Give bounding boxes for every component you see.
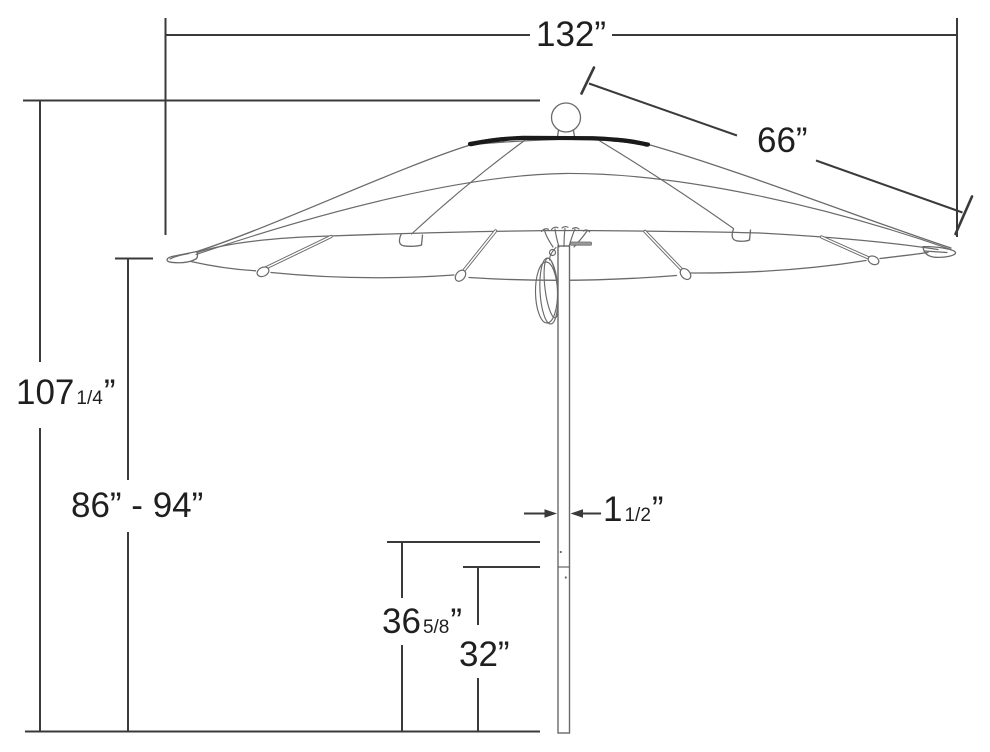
front-rim-scallop-2 bbox=[271, 273, 454, 278]
rope-loop-1 bbox=[538, 258, 559, 325]
pole-dia-arrowhead-left bbox=[545, 509, 558, 517]
hub-hook-3 bbox=[562, 227, 568, 228]
vent-shadow-accents bbox=[470, 138, 648, 145]
rib-span-label: 66” bbox=[757, 121, 808, 160]
front-rim-scallop-5 bbox=[880, 253, 928, 259]
mid-height-main: 36 bbox=[382, 602, 421, 641]
pole-diameter-main: 1 bbox=[603, 490, 622, 529]
canopy-seam-back-left bbox=[412, 141, 525, 235]
mid-height-label: 365/8” bbox=[382, 602, 462, 641]
finial-ball bbox=[552, 103, 581, 132]
umbrella-drawing bbox=[167, 103, 956, 733]
front-rib-strut-2-core bbox=[462, 231, 496, 274]
hub-stub-1 bbox=[545, 230, 554, 247]
left-canopy-tip bbox=[167, 252, 197, 263]
hub-stub-2 bbox=[555, 229, 559, 247]
pole-diameter-unit: ” bbox=[652, 490, 664, 529]
umbrella-pole bbox=[558, 246, 570, 733]
total-height-fraction: 1/4 bbox=[76, 388, 103, 409]
dimension-lines bbox=[23, 18, 972, 732]
total-height-main: 107 bbox=[16, 373, 74, 412]
hub-hook-4 bbox=[573, 228, 580, 229]
rope-loop-3 bbox=[535, 262, 558, 323]
dimension-labels: 132” 66” 1071/4” 86” - 94” 11/2” 365/8” … bbox=[16, 15, 808, 674]
pole-diameter-label: 11/2” bbox=[603, 490, 664, 529]
pole-height-range-label: 86” - 94” bbox=[71, 486, 203, 525]
front-rib-strut-1-core bbox=[263, 237, 332, 270]
front-rim-scallop-3 bbox=[469, 276, 677, 281]
pole-spring-button-lower bbox=[565, 576, 567, 578]
vent-shadow-right-icon bbox=[612, 140, 647, 145]
umbrella-dimension-diagram: 132” 66” 1071/4” 86” - 94” 11/2” 365/8” … bbox=[0, 0, 990, 752]
lower-height-label: 32” bbox=[459, 635, 510, 674]
rib-dim-tick-start bbox=[582, 68, 595, 94]
hub-stub-3 bbox=[564, 229, 565, 247]
pole-spring-button-upper bbox=[560, 551, 562, 553]
total-height-unit: ” bbox=[104, 373, 116, 412]
rib-end-cap-4 bbox=[867, 254, 881, 266]
back-rib-tip-right bbox=[732, 229, 750, 241]
total-height-label: 1071/4” bbox=[16, 373, 115, 412]
front-rim-scallop-1 bbox=[191, 262, 256, 271]
pole-dia-arrowhead-right bbox=[571, 509, 584, 517]
mid-height-fraction: 5/8 bbox=[423, 617, 449, 638]
rib-dim-line-upper bbox=[589, 84, 737, 136]
pole-diameter-fraction: 1/2 bbox=[624, 505, 650, 526]
canopy-width-label: 132” bbox=[536, 15, 606, 54]
front-rim-scallop-4 bbox=[691, 261, 866, 274]
tilt-pin bbox=[571, 242, 592, 245]
canopy-right-edge bbox=[649, 145, 952, 249]
canopy-seam-back-right bbox=[598, 140, 734, 229]
front-rib-strut-3-core bbox=[645, 232, 684, 273]
back-rib-tip-left bbox=[399, 235, 422, 247]
rib-dim-line-lower bbox=[816, 161, 963, 213]
diagram-canvas: 132” 66” 1071/4” 86” - 94” 11/2” 365/8” … bbox=[0, 0, 990, 752]
